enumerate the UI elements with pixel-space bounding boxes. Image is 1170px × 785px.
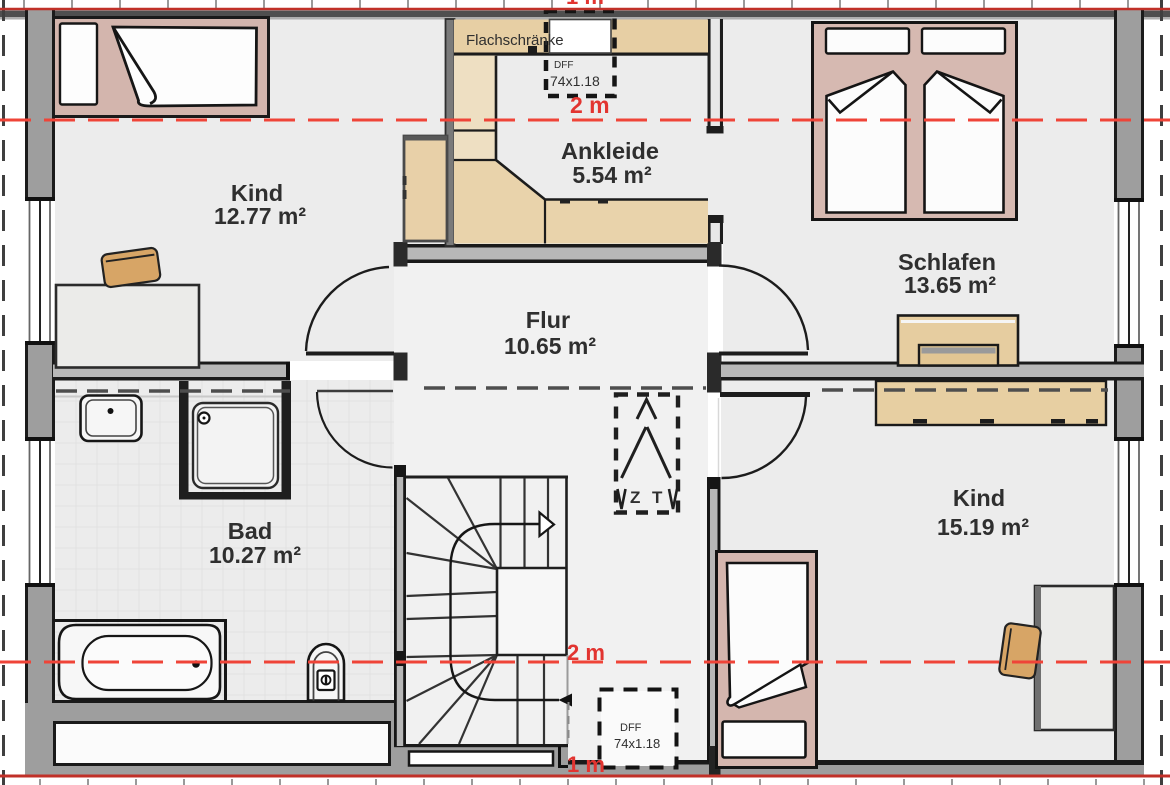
svg-text:10.65 m²: 10.65 m² (504, 333, 596, 359)
svg-text:2 m: 2 m (570, 92, 610, 118)
svg-text:Flur: Flur (526, 307, 570, 333)
svg-text:74x1.18: 74x1.18 (614, 736, 660, 751)
svg-text:T: T (652, 488, 663, 507)
svg-text:Flachschränke: Flachschränke (466, 32, 564, 49)
svg-text:Bad: Bad (228, 518, 272, 544)
svg-text:10.27 m²: 10.27 m² (209, 542, 301, 568)
svg-text:Kind: Kind (953, 485, 1005, 511)
svg-text:1 m: 1 m (566, 0, 604, 9)
svg-text:74x1.18: 74x1.18 (550, 73, 600, 89)
svg-text:12.77 m²: 12.77 m² (214, 203, 306, 229)
svg-text:Ankleide: Ankleide (561, 138, 659, 164)
svg-text:DFF: DFF (620, 722, 642, 734)
svg-text:15.19 m²: 15.19 m² (937, 514, 1029, 540)
svg-text:Z: Z (630, 488, 640, 507)
svg-text:5.54 m²: 5.54 m² (572, 162, 652, 188)
svg-text:13.65 m²: 13.65 m² (904, 272, 996, 298)
svg-text:DFF: DFF (554, 60, 573, 71)
svg-text:2 m: 2 m (567, 640, 605, 665)
svg-text:1 m: 1 m (567, 752, 605, 777)
